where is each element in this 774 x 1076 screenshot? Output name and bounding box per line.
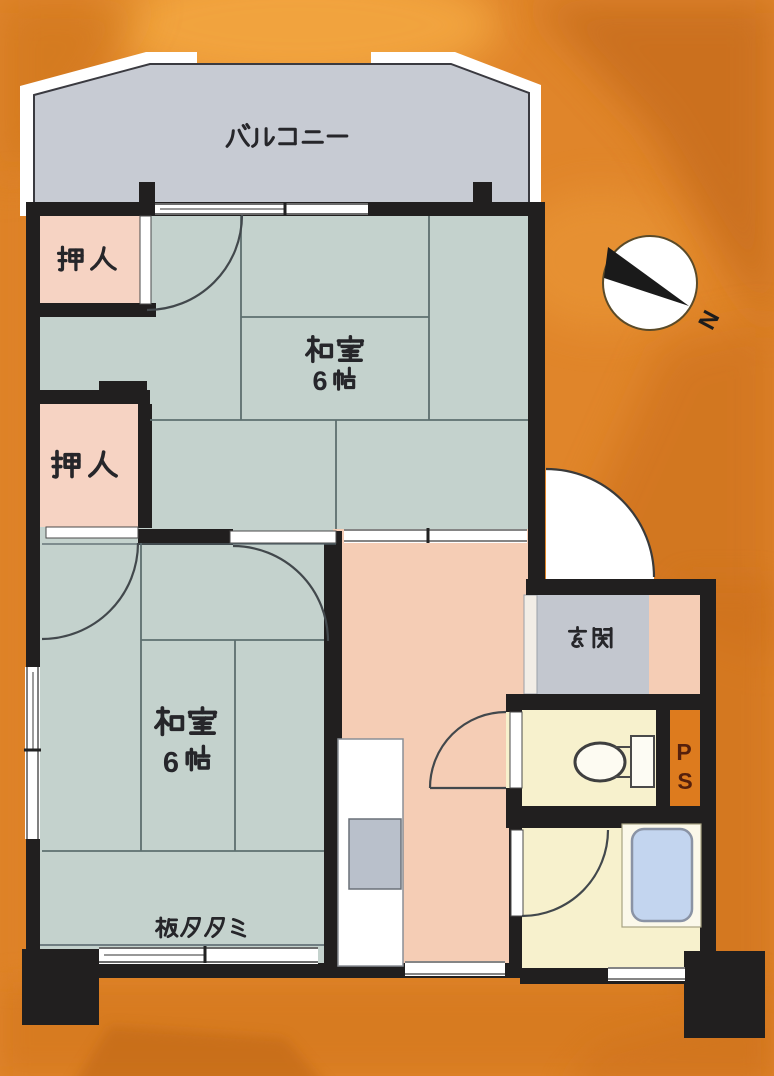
svg-text:6: 6: [312, 366, 327, 396]
svg-text:S: S: [677, 768, 692, 794]
svg-text:6: 6: [163, 747, 179, 779]
svg-text:P: P: [676, 739, 691, 765]
